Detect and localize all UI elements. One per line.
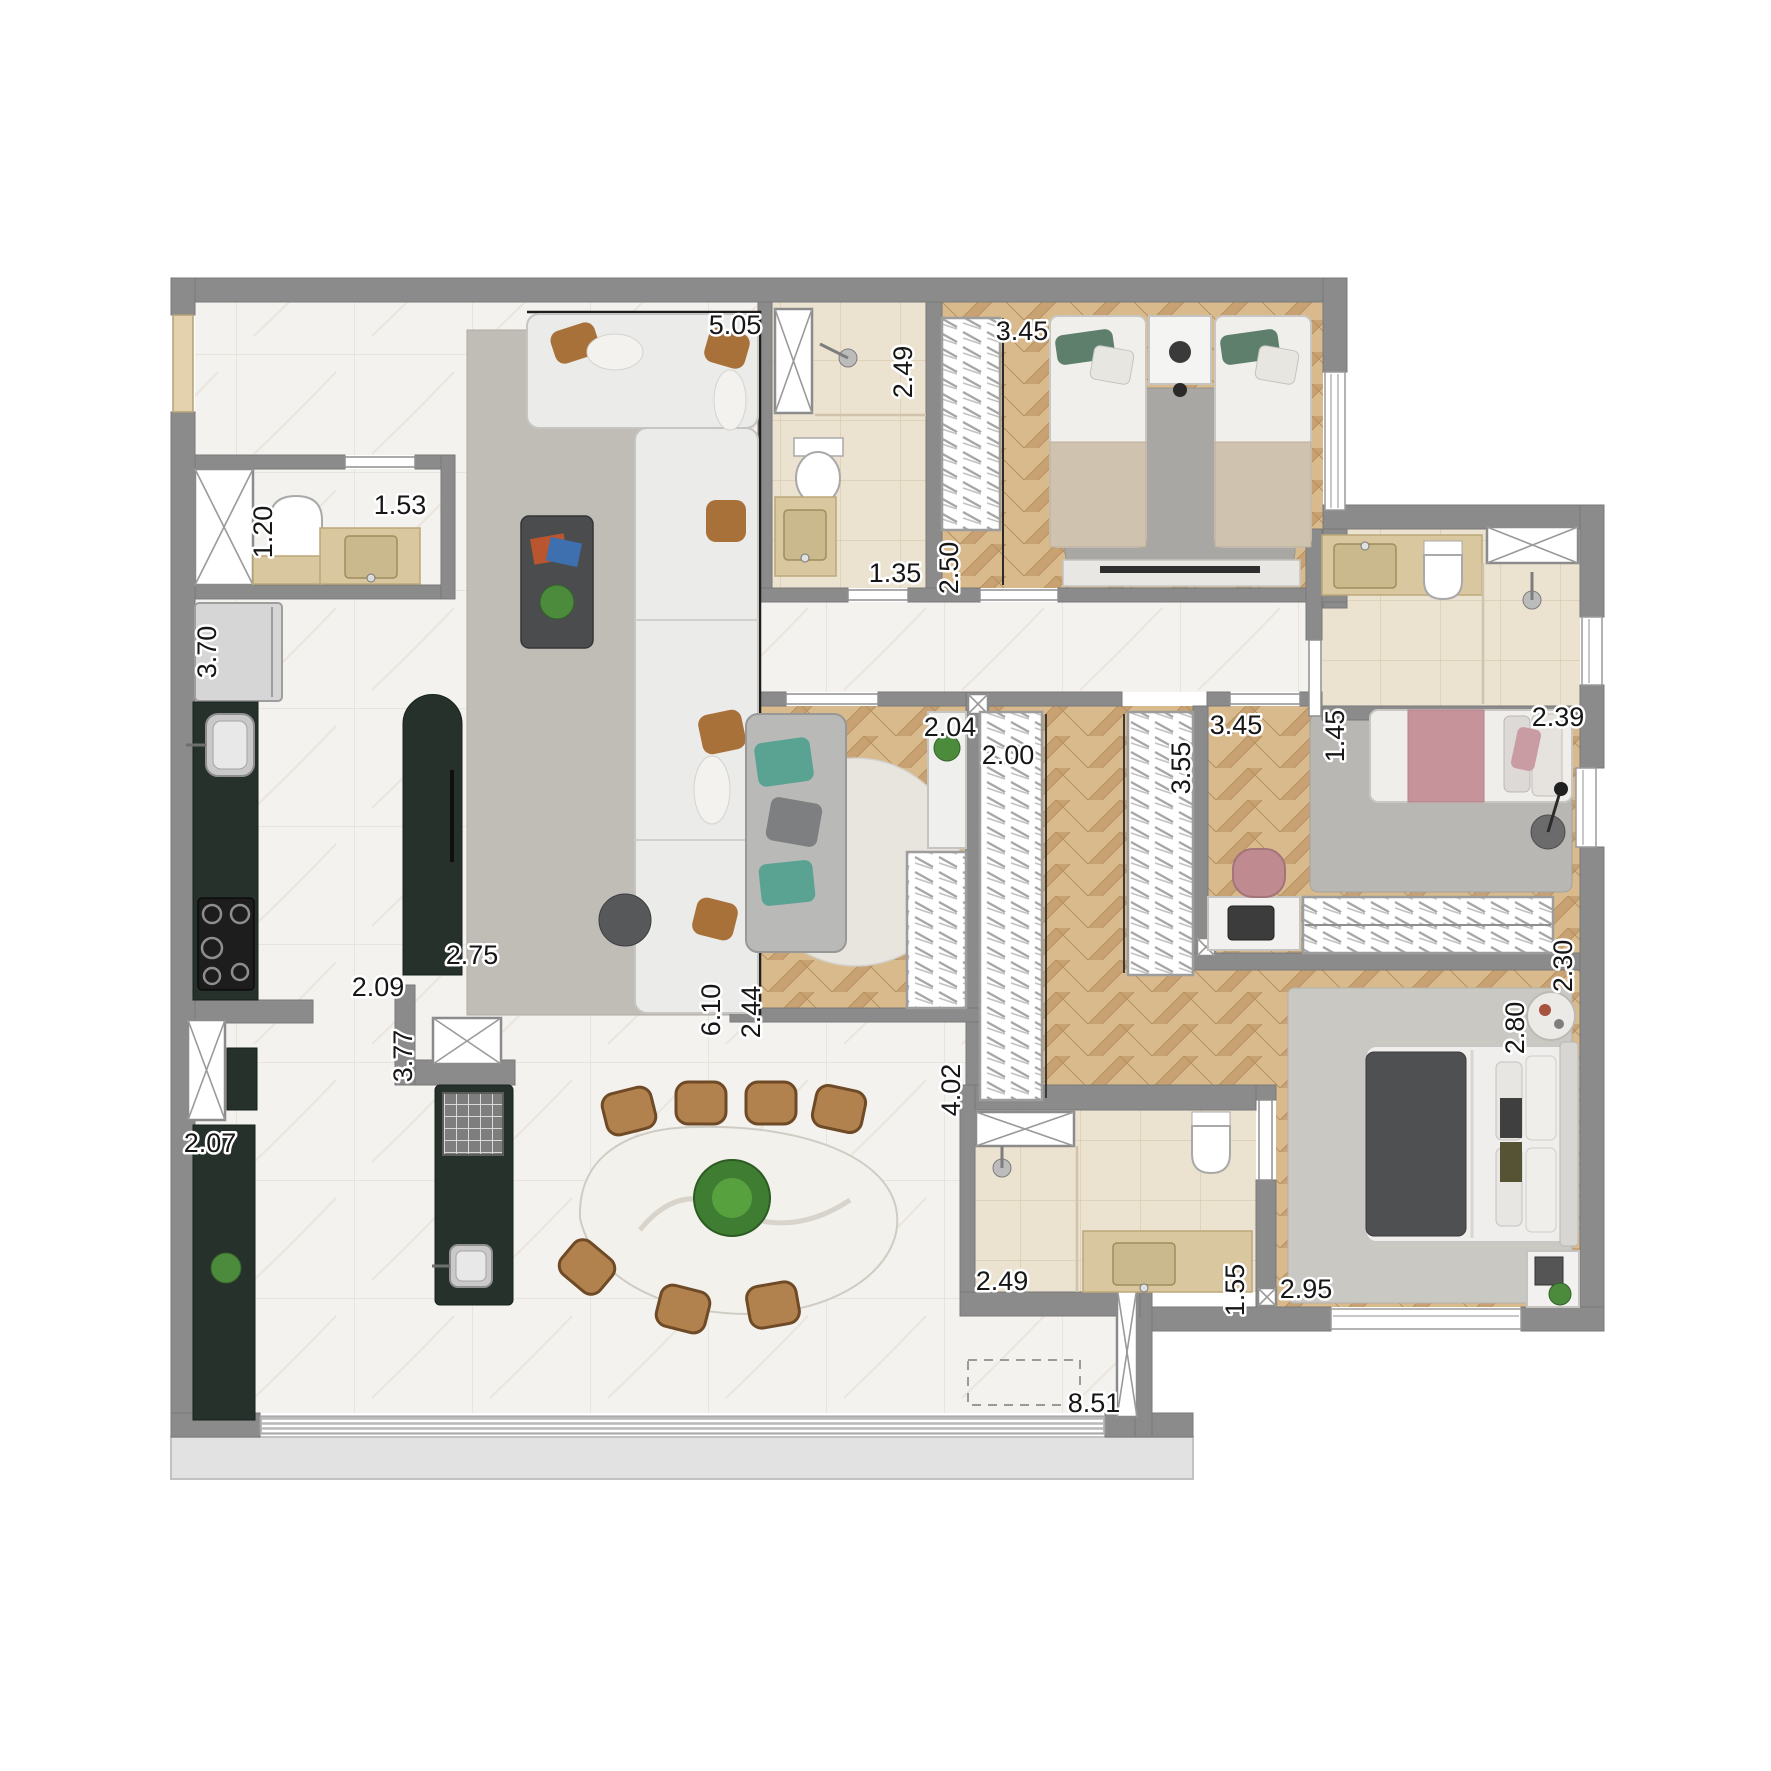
pink-desk-laptop (1228, 906, 1274, 940)
master-pillow-4 (1526, 1148, 1556, 1232)
mbath-toilet-bowl (1192, 1126, 1230, 1173)
floor-plan-canvas: 5.05 2.49 3.45 1.20 1.53 1.35 2.50 3.70 … (0, 0, 1771, 1771)
tv-sofa-pillow-teal-2 (758, 859, 816, 906)
dim-tv-room-depth: 2.44 (736, 986, 766, 1039)
dim-living-length: 6.10 (696, 984, 726, 1037)
pink-floor-lamp-top (1554, 782, 1568, 796)
tv-room-door-leaf (786, 694, 878, 704)
wall-lavabo-bottom (195, 585, 455, 599)
dim-closet-length: 4.02 (936, 1064, 966, 1117)
wall-wing-bottom-b (1521, 1307, 1604, 1331)
lavabo-faucet (367, 574, 375, 582)
dim-lavabo-length: 1.53 (374, 490, 427, 520)
wall-twin-right-a (1323, 278, 1347, 372)
master-side-table-item-2 (1554, 1019, 1564, 1029)
dim-twin-depth: 2.50 (934, 542, 964, 595)
suite-passage-floor (1193, 970, 1280, 1085)
bath2-toilet-bowl (1424, 555, 1462, 599)
sofa-pillow-brown-3 (706, 500, 746, 542)
twin-bed1-blanket (1050, 442, 1146, 547)
master-cushion-dark-2 (1500, 1142, 1522, 1182)
bath2-door-leaf (1309, 640, 1321, 716)
twin-bed-2 (1215, 316, 1311, 547)
dim-mbath-vanity: 1.55 (1220, 1264, 1250, 1317)
tv-sofa-pillow-gray (765, 796, 824, 848)
dim-mbath-shower: 2.49 (976, 1266, 1029, 1296)
shaft-bath-social (775, 309, 812, 413)
wall-tv-bottom (730, 1008, 980, 1022)
balcony-sliding-door (260, 1416, 1105, 1434)
terrace-slab (171, 1437, 1193, 1479)
master-pillow-3 (1526, 1056, 1556, 1140)
shaft-bath2 (1487, 527, 1578, 563)
gourmet-plant (211, 1253, 241, 1283)
wall-left-a (171, 278, 195, 315)
dim-island-run: 3.77 (388, 1030, 418, 1083)
wall-hall-top-c (1058, 588, 1347, 602)
kitchen-sink-basin (213, 721, 247, 769)
twin-lamp-base (1173, 383, 1187, 397)
pink-chair (1233, 849, 1285, 897)
wall-hall-bottom-b (878, 692, 1122, 706)
closet-wardrobe-left (980, 712, 1042, 1100)
dining-chair (746, 1082, 796, 1124)
twin-bed1-pillow-check (1089, 345, 1134, 385)
wall-mbath-left (960, 1085, 975, 1307)
master-bedroom-window (1331, 1309, 1521, 1329)
gourmet-sink-basin (456, 1251, 486, 1281)
shaft-lavabo (195, 469, 253, 585)
twin-bed-1 (1050, 316, 1146, 547)
dim-master-width: 2.80 (1500, 1002, 1530, 1055)
dim-bath2-width: 1.45 (1320, 710, 1350, 763)
sofa-pillow-white-2 (714, 370, 746, 430)
master-desk-plant (1549, 1283, 1571, 1305)
dim-kitchen-width: 2.09 (352, 972, 405, 1002)
wall-hall-top-a (758, 588, 848, 602)
wall-pink-bottom (1193, 953, 1580, 970)
bath2-sink (1334, 544, 1396, 588)
master-side-table (1527, 992, 1575, 1040)
twin-lamp (1169, 341, 1191, 363)
wall-lavabo-right (441, 455, 455, 599)
master-bed (1366, 1042, 1578, 1246)
dining-centerpiece-core (712, 1178, 752, 1218)
master-bath-door-leaf (1259, 1100, 1272, 1180)
twin-bed2-pillow-check (1254, 345, 1299, 385)
dim-tv-console: 2.04 (924, 712, 977, 742)
balcony-slab (171, 1437, 1193, 1479)
dim-bath-social-width: 2.49 (888, 346, 918, 399)
bath-social-sink (784, 510, 826, 560)
wall-wing-right-c (1580, 847, 1604, 1331)
twin-tv (1100, 566, 1260, 573)
dim-balcony-front: 8.51 (1068, 1388, 1121, 1418)
grill-island (432, 1085, 513, 1305)
coffee-table-plant (540, 585, 574, 619)
bath-social-faucet (801, 554, 809, 562)
wall-lavabo-top-a (195, 455, 345, 469)
master-bed-blanket (1366, 1052, 1466, 1236)
entry-door-leaf (173, 315, 193, 412)
lavabo-counter-strip (253, 556, 323, 584)
twin-bed2-blanket (1215, 442, 1311, 547)
twin-wardrobe (942, 318, 1000, 530)
wall-top (171, 278, 1347, 302)
mbath-toilet-tank (1192, 1112, 1230, 1126)
entry-door (173, 315, 193, 412)
pink-bedroom-door-leaf (1230, 694, 1300, 704)
entry-floor (195, 302, 455, 455)
bath2-faucet (1361, 542, 1369, 550)
master-side-table-item-1 (1539, 1004, 1551, 1016)
master-cushion-dark-1 (1500, 1098, 1522, 1138)
wall-left-b (171, 412, 195, 1437)
dim-pink-depth: 2.30 (1548, 940, 1578, 993)
side-stool (599, 894, 651, 946)
dim-bath-social-length: 1.35 (869, 558, 922, 588)
dim-master-length: 2.95 (1280, 1274, 1333, 1304)
toilet-bowl (796, 452, 840, 504)
dim-closet-right: 3.55 (1166, 742, 1196, 795)
gourmet-door-leaf (227, 1048, 257, 1110)
dim-gourmet-counter: 2.07 (184, 1128, 237, 1158)
dim-lavabo-width: 1.20 (248, 506, 278, 559)
sofa-pillow-white-3 (694, 756, 730, 824)
tv-sofa-pillow-teal-1 (753, 736, 815, 787)
wall-wing-right-a (1580, 505, 1604, 617)
dim-kitchen-length: 3.70 (192, 626, 222, 679)
wall-closet-left (966, 692, 980, 1096)
lavabo-sink (345, 536, 397, 578)
twin-bedroom-door-leaf (980, 590, 1058, 600)
master-headboard (1560, 1042, 1578, 1246)
shaft-gourmet (188, 1020, 225, 1120)
dining-chair (810, 1083, 868, 1134)
wall-master-left-a (1256, 1085, 1276, 1100)
twin-bedroom-window (1325, 372, 1345, 510)
mbath-faucet (1140, 1284, 1148, 1292)
master-desk-frame (1535, 1257, 1563, 1285)
pink-bedroom-window (1576, 768, 1596, 847)
lavabo-door-leaf (345, 457, 415, 467)
shaft-kitchen (433, 1018, 501, 1064)
dining-chair (745, 1280, 802, 1330)
floor-plan-svg: 5.05 2.49 3.45 1.20 1.53 1.35 2.50 3.70 … (0, 0, 1771, 1771)
grill-grate (443, 1093, 503, 1155)
dining-chair (676, 1082, 726, 1124)
dim-bath2-length: 2.39 (1532, 702, 1585, 732)
tv-room-wardrobe (907, 852, 966, 1008)
mbath-sink (1113, 1243, 1175, 1285)
dim-living-sofa: 5.05 (709, 310, 762, 340)
wall-wing-top (1323, 505, 1604, 529)
bath2-toilet-tank (1424, 541, 1462, 555)
bath-social-door-leaf (848, 590, 908, 600)
dim-closet-left: 2.00 (982, 740, 1035, 770)
dim-kitchen-island: 2.75 (446, 940, 499, 970)
pink-bed-blanket (1408, 710, 1484, 802)
shaft-master-bath (976, 1112, 1074, 1146)
sofa-pillow-white-1 (587, 334, 643, 370)
bath2-window (1582, 617, 1602, 685)
column-marker-master (1258, 1288, 1276, 1306)
wall-hall-bottom-c (1207, 692, 1230, 706)
dim-twin-wardrobe: 3.45 (996, 316, 1049, 346)
dim-pink-width: 3.45 (1210, 710, 1263, 740)
